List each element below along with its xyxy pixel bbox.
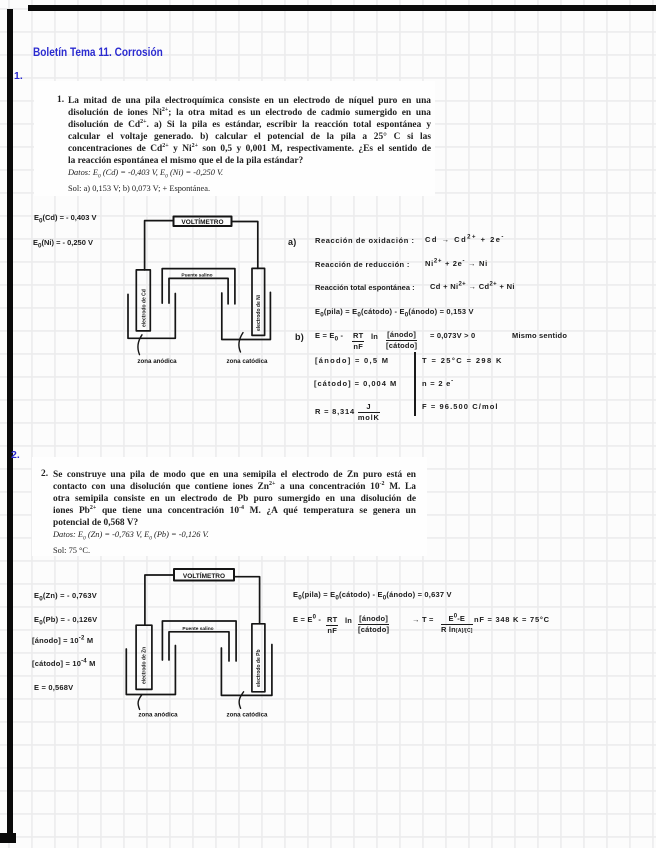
svg-text:zona anódica: zona anódica bbox=[137, 358, 177, 365]
svg-text:electrodo de Ni: electrodo de Ni bbox=[256, 294, 262, 331]
svg-text:VOLTÍMETRO: VOLTÍMETRO bbox=[183, 571, 225, 580]
svg-text:electrodo de Cd: electrodo de Cd bbox=[142, 289, 148, 327]
svg-text:electrodo de Pb: electrodo de Pb bbox=[256, 649, 262, 687]
svg-text:VOLTÍMETRO: VOLTÍMETRO bbox=[181, 217, 223, 226]
svg-text:Puente salino: Puente salino bbox=[182, 626, 213, 632]
svg-text:zona catódica: zona catódica bbox=[227, 712, 268, 719]
svg-text:zona anódica: zona anódica bbox=[138, 712, 178, 719]
svg-text:electrodo de Zn: electrodo de Zn bbox=[142, 647, 148, 684]
svg-text:Puente salino: Puente salino bbox=[181, 273, 212, 279]
svg-text:zona catódica: zona catódica bbox=[227, 358, 268, 365]
